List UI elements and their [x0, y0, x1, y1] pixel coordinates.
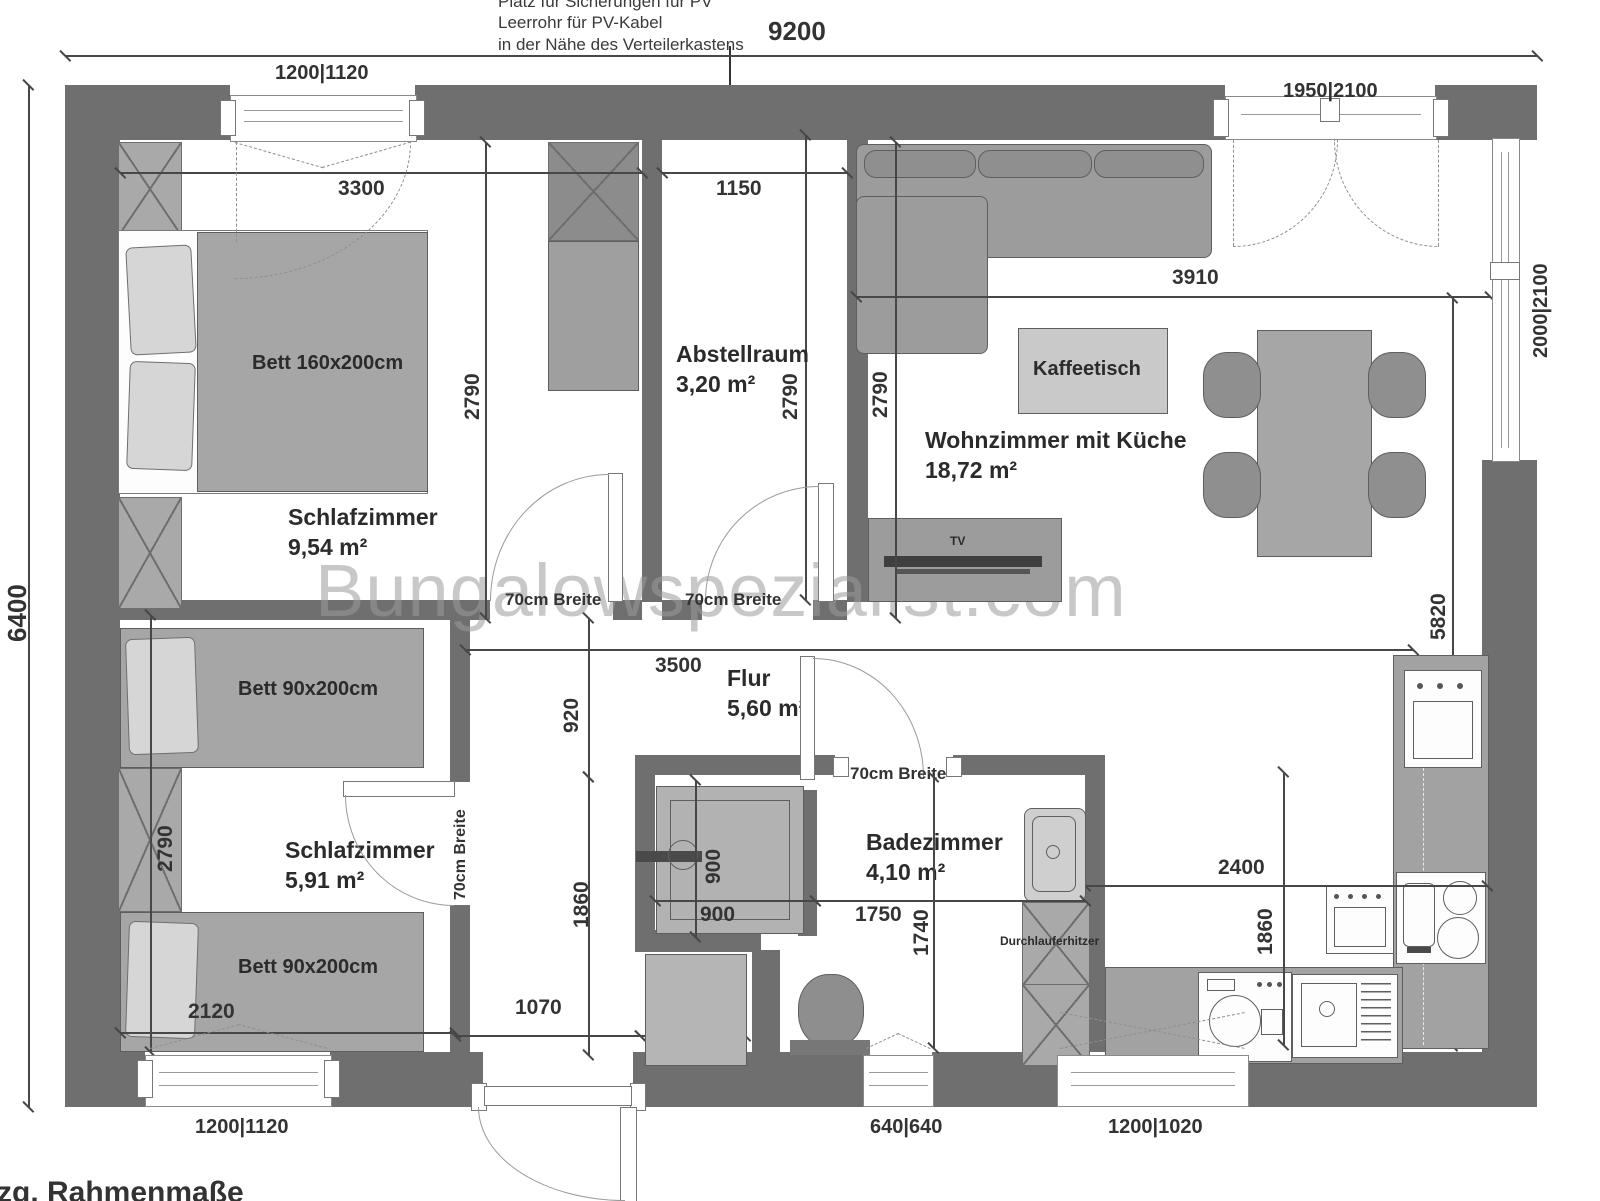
window-jamb	[409, 100, 425, 136]
pv-note-line3: in der Nähe des Verteilerkastens	[498, 34, 744, 55]
bedroom1-name: Schlafzimmer	[288, 503, 438, 533]
door-leaf-bedroom1	[608, 473, 623, 602]
window-line	[1071, 1085, 1234, 1086]
entrance-door-panel	[484, 1086, 632, 1106]
door-note-1: 70cm Breite	[505, 590, 601, 610]
oven-door	[1334, 907, 1386, 947]
dim-line-kitchen-w	[1085, 885, 1487, 887]
dim-hall-w: 3500	[655, 654, 702, 678]
window-label-bath: 640|640	[870, 1116, 942, 1139]
wall-bottom-1	[65, 1052, 145, 1107]
window-line	[1508, 152, 1509, 448]
door-note-2: 70cm Breite	[685, 590, 781, 610]
window-living-right	[1492, 138, 1520, 462]
dim-line-shower-d	[695, 780, 697, 937]
window-line	[869, 1085, 928, 1086]
window-open-line	[866, 1033, 899, 1049]
cabinet	[548, 241, 639, 391]
window-label-kitchen: 1200|1020	[1108, 1116, 1203, 1139]
wardrobe	[118, 142, 182, 236]
window-line	[159, 1085, 318, 1086]
dim-bath-w: 1750	[855, 903, 902, 927]
wall-right	[1482, 460, 1537, 1052]
room-label-hall: Flur 5,60 m²	[727, 664, 806, 724]
bed-double-label: Bett 160x200cm	[252, 352, 403, 375]
oven-knob	[1362, 894, 1367, 899]
wall-top-1	[65, 85, 230, 140]
oven-knob	[1376, 894, 1381, 899]
wm-knob	[1277, 982, 1282, 987]
pillow	[125, 244, 197, 355]
entrance-door-swing	[478, 1107, 625, 1201]
door-jamb	[1213, 99, 1229, 137]
toilet-bowl	[798, 974, 864, 1048]
washing-machine	[1198, 972, 1292, 1062]
oven	[1326, 886, 1394, 954]
chair	[1203, 352, 1261, 418]
wm-filter	[1261, 1009, 1283, 1035]
pv-note-line1: Platz für Sicherungen für PV	[498, 0, 744, 12]
dim-living-w: 3910	[1172, 266, 1219, 290]
dim-line-storage-w	[662, 172, 847, 174]
window-jamb	[324, 1060, 340, 1098]
wall-bedroom1-storage	[642, 140, 662, 602]
fridge-door	[1413, 701, 1473, 759]
water-heater-label: Durchlauferhitzer	[1000, 934, 1099, 948]
dim-line-entry-w	[455, 1035, 640, 1037]
entry-closet	[645, 954, 747, 1066]
room-label-living: Wohnzimmer mit Küche 18,72 m²	[925, 426, 1187, 486]
window-bedroom1-top	[230, 95, 417, 142]
shaft	[548, 142, 639, 241]
oven-knob	[1348, 894, 1353, 899]
bottom-note: zzg. Rahmenmaße	[0, 1176, 244, 1201]
dim-total-height: 6400	[2, 584, 33, 642]
door-swing-bath	[813, 658, 924, 777]
window-line	[244, 121, 403, 122]
door-jamb	[946, 757, 962, 777]
hall-name: Flur	[727, 664, 806, 694]
room-label-bedroom1: Schlafzimmer 9,54 m²	[288, 503, 438, 563]
pv-note-line2: Leerrohr für PV-Kabel	[498, 12, 744, 33]
wm-drum	[1209, 995, 1261, 1047]
dim-hall-h2: 1860	[570, 881, 594, 928]
dim-bedroom1-d: 2790	[461, 373, 485, 420]
window-line	[1071, 1072, 1234, 1073]
window-jamb	[137, 1060, 153, 1098]
room-label-storage: Abstellraum 3,20 m²	[676, 340, 809, 400]
shower-head	[668, 840, 698, 870]
fridge-knob	[1417, 683, 1423, 689]
dim-bedroom2-w: 2120	[188, 1000, 235, 1024]
dim-total-width: 9200	[768, 16, 826, 47]
bed-single-2-label: Bett 90x200cm	[238, 956, 378, 979]
sink-drain	[1319, 1001, 1335, 1017]
dim-shower-d: 900	[702, 849, 726, 884]
wall-top-3	[1435, 85, 1537, 140]
wall-top-2	[415, 85, 1225, 140]
toilet-tank	[790, 1040, 870, 1055]
window-line	[869, 1072, 928, 1073]
window-kitchen	[1057, 1055, 1249, 1107]
dim-line-bedroom2-d	[150, 615, 152, 1052]
wall-bath-top-right	[953, 755, 1105, 775]
dim-line-hall-w	[465, 649, 1413, 651]
bath-sink-drain	[1046, 845, 1060, 859]
dim-bedroom2-d: 2790	[154, 825, 178, 872]
window-jamb	[1490, 262, 1520, 280]
kitchen-sink-unit	[1292, 974, 1398, 1058]
dim-line-bedroom1-d	[485, 142, 487, 618]
window-bedroom2	[145, 1055, 332, 1107]
wall-bottom-2	[330, 1052, 483, 1107]
tv-stand	[896, 569, 1030, 574]
dim-line-living-d	[895, 142, 897, 618]
kitchen-small-sink	[1403, 883, 1435, 947]
dim-living-d: 2790	[869, 371, 893, 418]
window-line	[159, 1072, 318, 1073]
window-line	[244, 110, 403, 111]
sofa-cushion	[1094, 150, 1204, 178]
dim-line-living-w	[856, 296, 1490, 298]
dim-line-kitchen-d	[1283, 772, 1285, 1045]
chair	[1203, 452, 1261, 518]
door-leaf-storage	[818, 483, 834, 602]
dim-line-bedroom2-w	[120, 1032, 455, 1034]
dim-kitchen-d: 1860	[1254, 908, 1278, 955]
wall-left	[65, 140, 120, 1107]
dim-line-total-width	[65, 55, 1537, 57]
wardrobe	[118, 497, 182, 609]
terrace-door-swing	[1233, 140, 1338, 247]
water-heater-cabinet	[1022, 984, 1090, 1066]
dim-bath-d: 1740	[910, 909, 934, 956]
dim-kitchen-w: 2400	[1218, 856, 1265, 880]
bed-single-1-label: Bett 90x200cm	[238, 678, 378, 701]
chair	[1368, 352, 1426, 418]
fridge-knob	[1457, 683, 1463, 689]
sink-drainboard	[1361, 983, 1391, 1045]
pillow	[126, 361, 196, 471]
hall-area: 5,60 m²	[727, 694, 806, 724]
fridge	[1404, 670, 1482, 768]
door-jamb	[1433, 99, 1449, 137]
terrace-door-swing	[1334, 140, 1439, 247]
sofa-cushion	[978, 150, 1092, 178]
window-label-top: 1200|1120	[275, 62, 368, 85]
dim-living-h: 5820	[1427, 593, 1451, 640]
dim-line-shower-w	[655, 900, 815, 902]
pillow	[125, 637, 199, 755]
wall-entry-stub	[752, 950, 780, 1064]
sofa-cushion	[864, 150, 976, 178]
floor-plan: Platz für Sicherungen für PV Leerrohr fü…	[0, 0, 1600, 1201]
fridge-knob	[1437, 683, 1443, 689]
dim-entry-w: 1070	[515, 996, 562, 1020]
window-label-right: 2000|2100	[1530, 263, 1553, 358]
wm-knob	[1267, 982, 1272, 987]
door-note-3: 70cm Breite	[452, 809, 470, 900]
oven-knob	[1334, 894, 1339, 899]
coffee-table-label: Kaffeetisch	[1033, 358, 1141, 381]
door-swing-bedroom1	[490, 474, 609, 601]
wm-knob	[1257, 982, 1262, 987]
living-area: 18,72 m²	[925, 456, 1187, 486]
living-name: Wohnzimmer mit Küche	[925, 426, 1187, 456]
window-label-bedroom2: 1200|1120	[195, 1116, 288, 1139]
door-swing-storage	[705, 486, 819, 601]
faucet	[1407, 947, 1431, 953]
window-open-line	[898, 1033, 931, 1049]
wm-panel	[1207, 979, 1235, 991]
window-bath	[863, 1055, 934, 1107]
sofa-chaise	[856, 196, 988, 354]
window-line	[1501, 152, 1502, 448]
storage-name: Abstellraum	[676, 340, 809, 370]
terrace-door-label: 1950|2100	[1283, 80, 1378, 103]
bath-sink	[1024, 808, 1086, 902]
dim-line-bath-w	[815, 900, 1085, 902]
dining-table	[1257, 330, 1372, 557]
tv-screen	[884, 556, 1042, 567]
tv-label: TV	[950, 534, 965, 548]
bedroom1-area: 9,54 m²	[288, 533, 438, 563]
chair	[1368, 452, 1426, 518]
dim-line-hall-h1	[588, 618, 590, 777]
dim-hall-h1: 920	[560, 698, 584, 733]
pv-note: Platz für Sicherungen für PV Leerrohr fü…	[498, 0, 744, 55]
burner	[1437, 917, 1479, 959]
storage-area: 3,20 m²	[676, 370, 809, 400]
window-jamb	[220, 100, 236, 136]
dim-storage-w: 1150	[716, 177, 762, 201]
dim-shower-w: 900	[700, 903, 735, 927]
